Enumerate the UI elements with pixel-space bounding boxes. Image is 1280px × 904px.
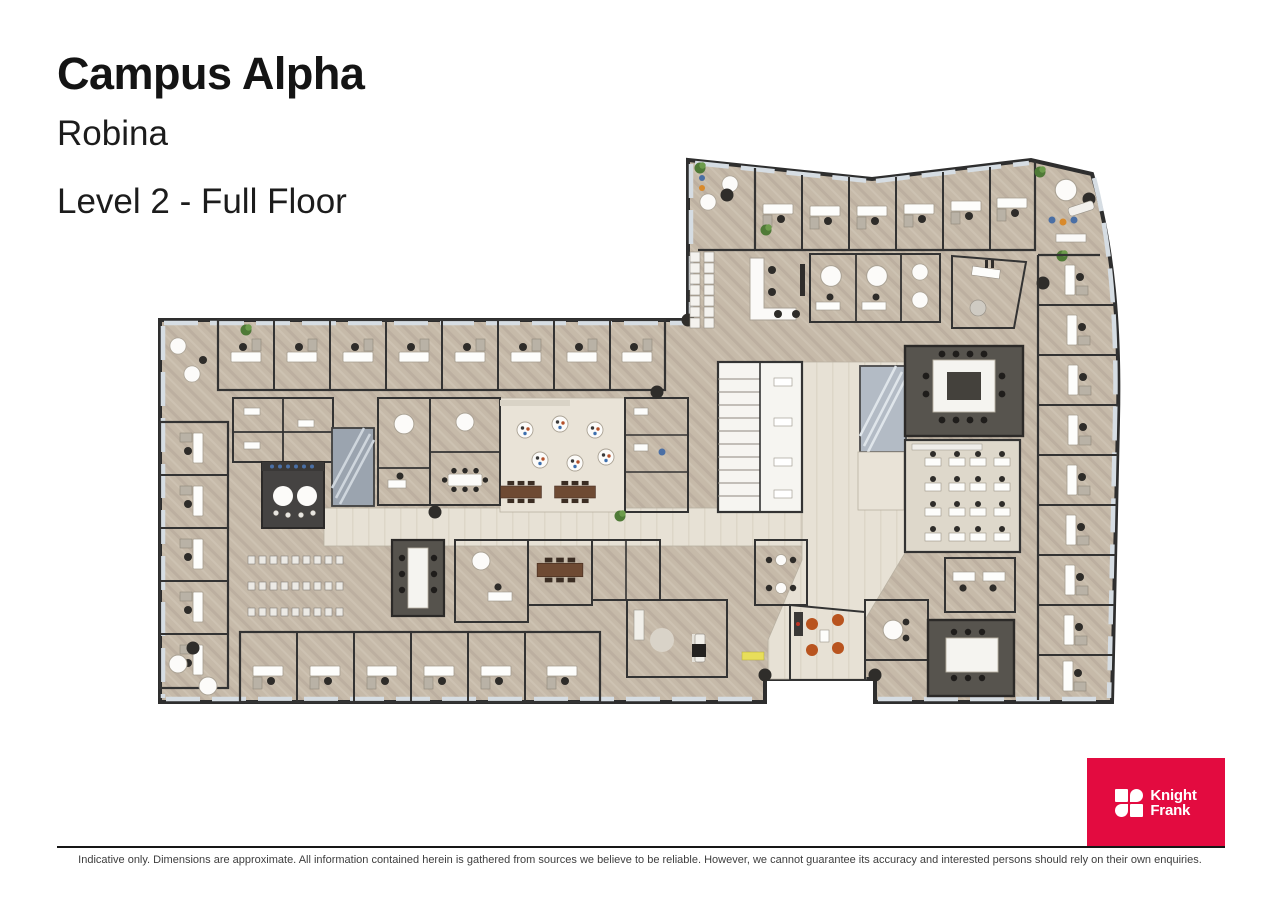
kitchen [262, 462, 324, 528]
training-room-right [905, 440, 1020, 552]
boardroom-left-dark [392, 540, 444, 616]
disclaimer-text: Indicative only. Dimensions are approxim… [0, 854, 1280, 866]
knight-frank-logo: Knight Frank [1087, 758, 1225, 847]
toilets [718, 362, 802, 512]
meeting-room-dark-bottom-right [928, 620, 1014, 696]
knight-frank-wordmark: Knight Frank [1150, 788, 1196, 818]
stair-shaft-left [332, 428, 374, 506]
stairs-core [858, 366, 906, 510]
knight-frank-mark-icon [1115, 789, 1143, 817]
boardroom-right [905, 346, 1023, 436]
footer-divider [57, 846, 1225, 848]
